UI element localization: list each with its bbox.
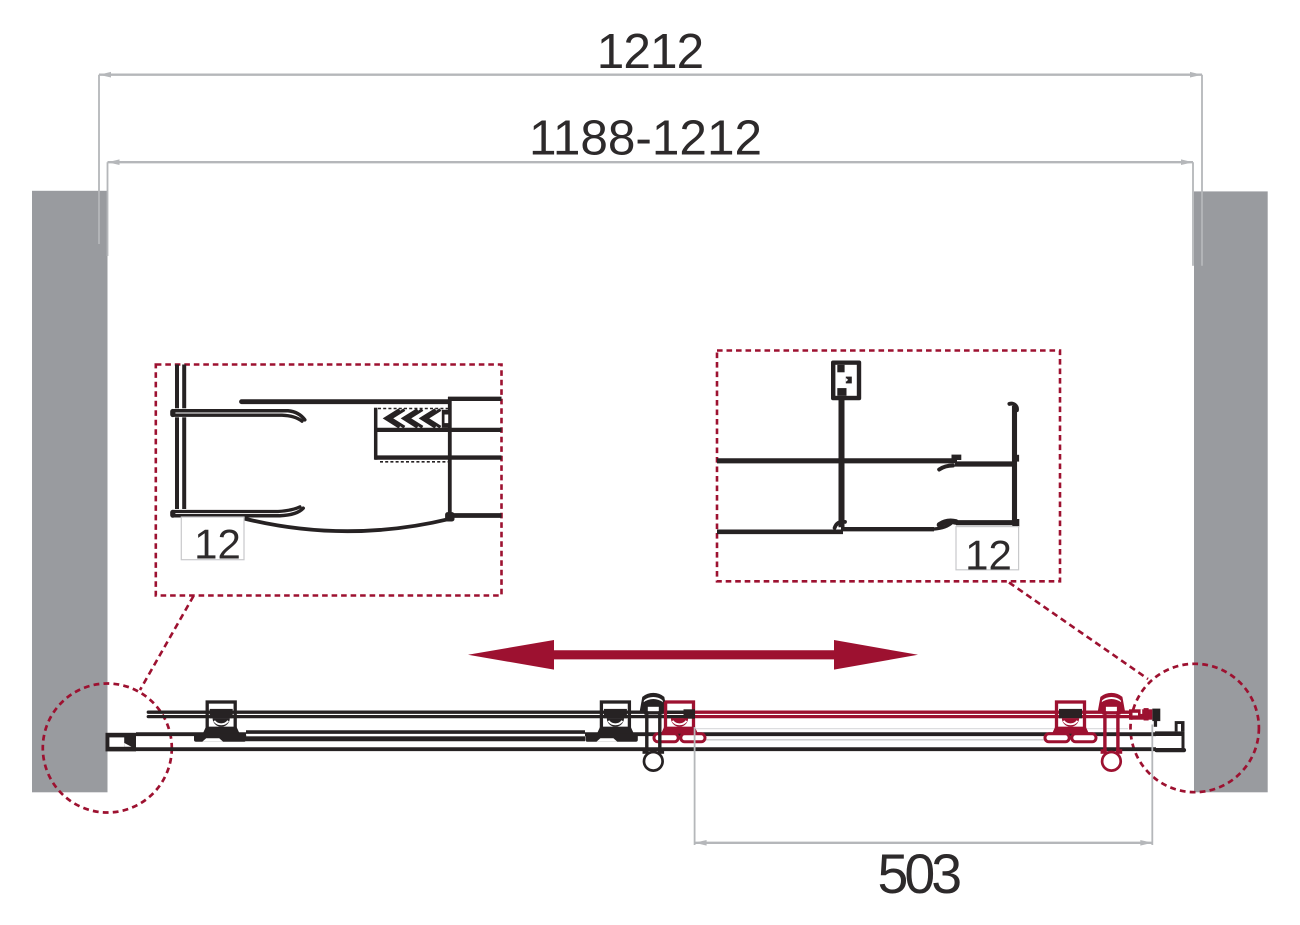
svg-text:503: 503 (877, 843, 960, 905)
svg-text:12: 12 (194, 521, 241, 568)
svg-text:1212: 1212 (597, 24, 704, 79)
svg-text:12: 12 (965, 531, 1012, 578)
svg-text:1188-1212: 1188-1212 (529, 111, 762, 166)
